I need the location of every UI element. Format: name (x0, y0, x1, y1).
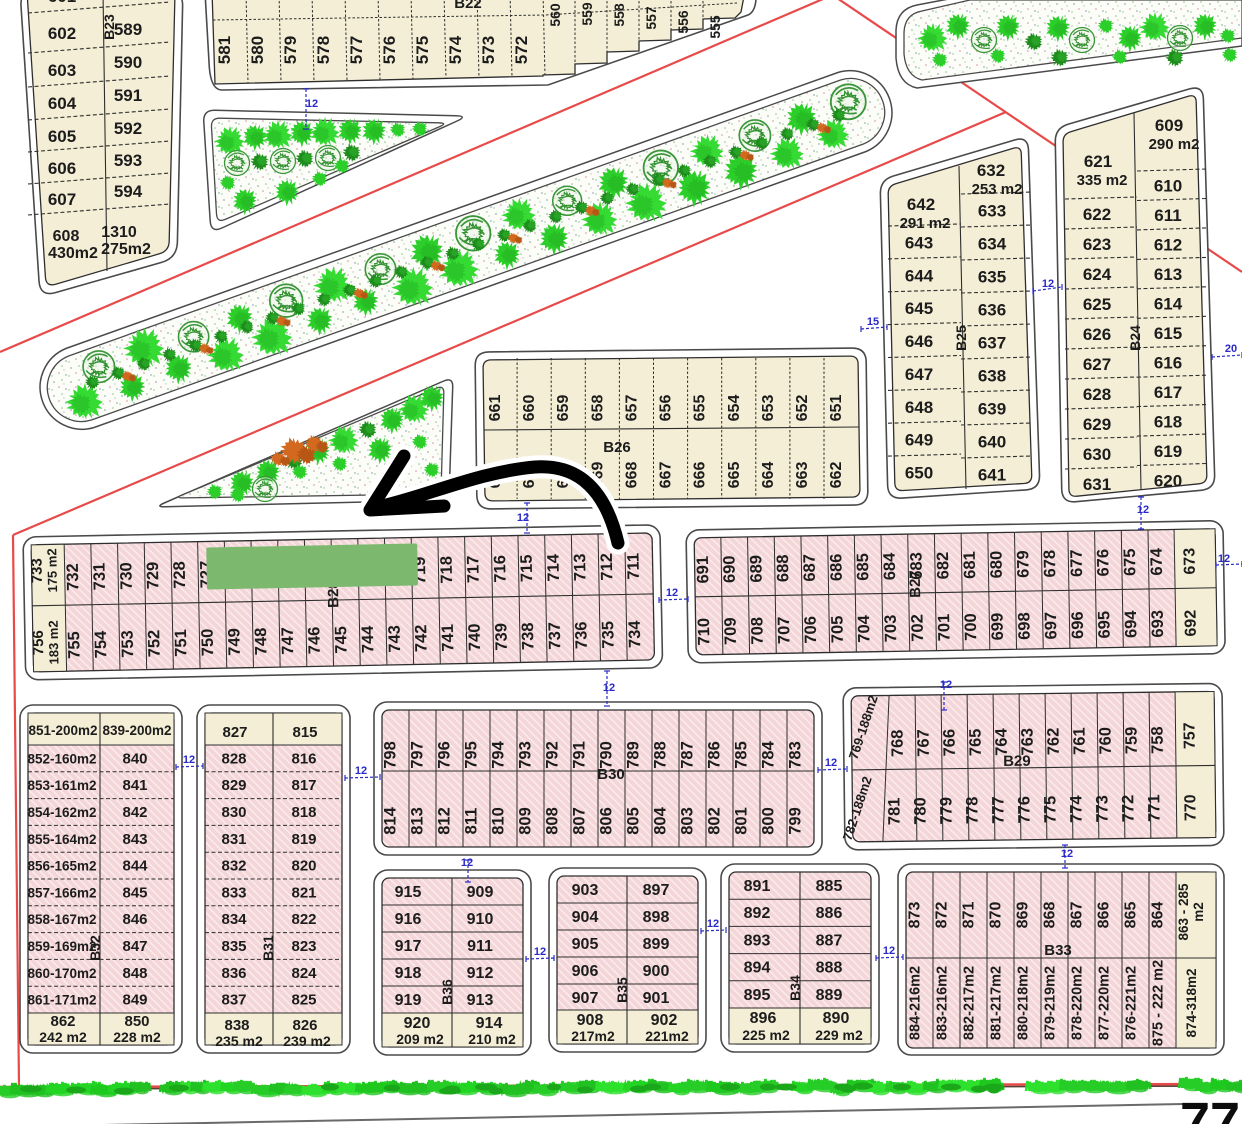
svg-text:909: 909 (467, 884, 494, 901)
svg-text:752: 752 (145, 630, 164, 658)
svg-text:662: 662 (828, 462, 845, 489)
svg-text:681: 681 (961, 551, 979, 579)
svg-text:242 m2: 242 m2 (39, 1029, 87, 1045)
svg-text:893: 893 (744, 932, 771, 949)
svg-text:746: 746 (305, 626, 324, 654)
svg-text:783: 783 (787, 741, 805, 769)
svg-text:908: 908 (577, 1012, 604, 1029)
svg-text:814: 814 (382, 806, 400, 834)
svg-text:665: 665 (726, 462, 743, 489)
svg-text:706: 706 (802, 616, 820, 644)
svg-text:709: 709 (722, 617, 740, 645)
svg-text:767: 767 (915, 729, 933, 757)
svg-text:648: 648 (905, 398, 933, 417)
svg-text:661: 661 (487, 395, 504, 422)
svg-text:580: 580 (248, 36, 267, 64)
svg-text:827: 827 (222, 724, 247, 741)
svg-text:790: 790 (598, 741, 616, 769)
svg-text:175 m2: 175 m2 (44, 548, 60, 592)
svg-text:834: 834 (221, 911, 247, 928)
svg-text:907: 907 (572, 990, 599, 1007)
svg-text:606: 606 (48, 159, 76, 178)
svg-text:761: 761 (1070, 727, 1088, 755)
svg-text:771: 771 (1145, 794, 1163, 822)
svg-text:603: 603 (48, 61, 76, 80)
svg-text:604: 604 (48, 94, 77, 113)
svg-text:728: 728 (171, 561, 190, 589)
svg-text:558: 558 (611, 3, 627, 27)
svg-text:690: 690 (720, 555, 738, 583)
svg-text:866: 866 (1096, 902, 1113, 929)
svg-text:780: 780 (911, 797, 929, 825)
svg-text:829: 829 (221, 777, 246, 794)
svg-text:729: 729 (144, 562, 163, 590)
svg-text:627: 627 (1083, 355, 1111, 374)
svg-text:919: 919 (395, 992, 422, 1009)
svg-text:651: 651 (828, 395, 845, 422)
svg-text:633: 633 (978, 202, 1006, 221)
svg-text:B29: B29 (1003, 753, 1031, 770)
svg-text:579: 579 (281, 36, 300, 64)
svg-text:831: 831 (221, 831, 246, 848)
svg-text:684: 684 (881, 552, 899, 581)
svg-text:765: 765 (967, 729, 985, 757)
svg-text:607: 607 (48, 190, 76, 209)
svg-text:754: 754 (92, 630, 111, 659)
svg-text:B32: B32 (87, 935, 103, 961)
svg-text:701: 701 (935, 614, 953, 642)
svg-text:846: 846 (122, 911, 147, 928)
svg-text:618: 618 (1154, 412, 1182, 431)
svg-text:335 m2: 335 m2 (1077, 172, 1128, 189)
svg-text:768: 768 (889, 729, 907, 757)
svg-text:556: 556 (675, 10, 691, 34)
svg-text:861-171m2: 861-171m2 (27, 993, 96, 1008)
svg-text:798: 798 (382, 741, 400, 769)
svg-text:688: 688 (774, 554, 792, 582)
svg-text:647: 647 (905, 365, 933, 384)
svg-text:B23: B23 (101, 14, 117, 40)
svg-text:800: 800 (760, 807, 778, 835)
svg-text:699: 699 (988, 613, 1006, 641)
svg-text:751: 751 (172, 629, 191, 657)
svg-text:852-160m2: 852-160m2 (27, 751, 96, 766)
svg-text:12: 12 (355, 765, 367, 777)
svg-text:663: 663 (794, 462, 811, 489)
svg-text:826: 826 (292, 1017, 317, 1034)
svg-text:577: 577 (347, 36, 366, 64)
svg-text:837: 837 (221, 992, 246, 1009)
svg-text:605: 605 (48, 127, 76, 146)
svg-text:748: 748 (252, 628, 271, 656)
svg-text:883-216m2: 883-216m2 (935, 966, 951, 1040)
svg-text:620: 620 (1154, 471, 1182, 490)
svg-text:785: 785 (733, 741, 751, 769)
svg-text:626: 626 (1083, 325, 1111, 344)
svg-text:880-218m2: 880-218m2 (1016, 966, 1032, 1040)
svg-text:886: 886 (816, 905, 843, 922)
svg-text:654: 654 (726, 395, 743, 422)
svg-text:799: 799 (787, 807, 805, 835)
svg-text:640: 640 (978, 433, 1006, 452)
svg-text:659: 659 (555, 395, 572, 422)
svg-text:758: 758 (1148, 726, 1166, 754)
svg-text:693: 693 (1149, 610, 1167, 638)
svg-text:624: 624 (1083, 265, 1112, 284)
svg-text:660: 660 (521, 395, 538, 422)
svg-text:910: 910 (467, 911, 494, 928)
svg-text:801: 801 (733, 807, 751, 835)
svg-text:884-216m2: 884-216m2 (908, 966, 924, 1040)
svg-text:609: 609 (1155, 116, 1183, 135)
svg-text:666: 666 (692, 462, 709, 489)
svg-text:652: 652 (794, 395, 811, 422)
svg-text:890: 890 (823, 1010, 850, 1027)
svg-text:674: 674 (1148, 547, 1166, 576)
svg-text:803: 803 (679, 807, 697, 835)
svg-text:12: 12 (1061, 848, 1073, 860)
svg-text:634: 634 (978, 235, 1007, 254)
svg-text:702: 702 (909, 614, 927, 642)
svg-text:275m2: 275m2 (101, 241, 151, 258)
svg-text:650: 650 (905, 464, 933, 483)
svg-text:850: 850 (124, 1013, 149, 1030)
svg-text:668: 668 (624, 462, 641, 489)
svg-text:766: 766 (941, 729, 959, 757)
svg-text:894: 894 (744, 960, 771, 977)
svg-text:12: 12 (534, 946, 546, 958)
svg-text:749: 749 (225, 628, 244, 656)
svg-text:779: 779 (937, 797, 955, 825)
svg-text:892: 892 (744, 905, 771, 922)
svg-text:573: 573 (479, 36, 498, 64)
svg-text:B30: B30 (597, 766, 625, 783)
svg-text:870: 870 (988, 902, 1005, 929)
svg-text:818: 818 (291, 804, 316, 821)
svg-text:913: 913 (467, 992, 494, 1009)
svg-text:756: 756 (30, 630, 47, 655)
svg-text:655: 655 (692, 395, 709, 422)
svg-text:868: 868 (1042, 902, 1059, 929)
svg-text:810: 810 (490, 807, 508, 835)
svg-text:845: 845 (122, 884, 147, 901)
svg-text:559: 559 (579, 2, 595, 26)
svg-text:629: 629 (1083, 415, 1111, 434)
svg-text:791: 791 (571, 741, 589, 769)
svg-text:209 m2: 209 m2 (396, 1031, 444, 1047)
svg-text:576: 576 (380, 36, 399, 64)
svg-text:773: 773 (1093, 795, 1111, 823)
svg-text:830: 830 (221, 804, 246, 821)
svg-text:290 m2: 290 m2 (1149, 136, 1200, 153)
svg-text:608: 608 (53, 228, 80, 245)
svg-text:691: 691 (694, 556, 712, 584)
svg-text:905: 905 (572, 936, 599, 953)
svg-text:612: 612 (1154, 236, 1182, 255)
svg-text:575: 575 (413, 36, 432, 64)
svg-text:774: 774 (1067, 794, 1085, 823)
svg-text:183 m2: 183 m2 (46, 620, 62, 664)
svg-text:860-170m2: 860-170m2 (27, 966, 96, 981)
svg-text:900: 900 (643, 963, 670, 980)
svg-text:12: 12 (707, 918, 719, 930)
svg-text:657: 657 (624, 395, 641, 422)
svg-text:12: 12 (306, 98, 318, 110)
svg-text:898: 898 (643, 909, 670, 926)
svg-text:210 m2: 210 m2 (468, 1031, 516, 1047)
svg-text:873: 873 (907, 902, 924, 929)
svg-text:1310: 1310 (101, 224, 137, 241)
svg-text:664: 664 (760, 462, 777, 489)
svg-text:716: 716 (491, 555, 510, 583)
svg-text:656: 656 (658, 395, 675, 422)
svg-text:636: 636 (978, 301, 1006, 320)
svg-text:m2: m2 (1191, 902, 1206, 922)
svg-text:715: 715 (518, 554, 537, 582)
svg-text:760: 760 (1096, 727, 1114, 755)
svg-text:917: 917 (395, 938, 422, 955)
svg-text:12: 12 (183, 754, 195, 766)
svg-text:695: 695 (1095, 611, 1113, 639)
svg-text:689: 689 (747, 555, 765, 583)
svg-text:854-162m2: 854-162m2 (27, 805, 96, 820)
svg-text:707: 707 (775, 616, 793, 644)
svg-text:812: 812 (436, 807, 454, 835)
svg-text:12: 12 (666, 587, 678, 599)
svg-text:710: 710 (695, 618, 713, 646)
svg-text:843: 843 (122, 831, 147, 848)
svg-text:B35: B35 (614, 977, 630, 1003)
svg-text:872: 872 (934, 902, 951, 929)
svg-text:625: 625 (1083, 295, 1111, 314)
svg-text:808: 808 (544, 807, 562, 835)
svg-text:755: 755 (65, 631, 84, 659)
svg-text:828: 828 (221, 750, 246, 767)
svg-text:867: 867 (1069, 902, 1086, 929)
svg-text:897: 897 (643, 882, 670, 899)
svg-text:228 m2: 228 m2 (113, 1029, 161, 1045)
svg-text:12: 12 (461, 857, 473, 869)
svg-text:15: 15 (867, 316, 879, 328)
svg-text:617: 617 (1154, 383, 1182, 402)
svg-text:698: 698 (1015, 612, 1033, 640)
svg-text:611: 611 (1154, 206, 1181, 225)
svg-text:673: 673 (1181, 548, 1198, 575)
svg-text:631: 631 (1083, 475, 1111, 494)
svg-text:777: 777 (989, 796, 1007, 824)
svg-text:822: 822 (291, 911, 316, 928)
svg-text:708: 708 (748, 617, 766, 645)
svg-text:642: 642 (907, 195, 935, 214)
svg-text:712: 712 (598, 553, 617, 581)
svg-text:560: 560 (547, 3, 563, 27)
svg-text:679: 679 (1014, 550, 1032, 578)
svg-text:645: 645 (905, 299, 933, 318)
svg-text:697: 697 (1042, 612, 1060, 640)
svg-text:733: 733 (28, 558, 45, 583)
svg-text:823: 823 (291, 938, 316, 955)
svg-text:B22: B22 (454, 0, 482, 12)
svg-text:644: 644 (905, 266, 934, 285)
svg-text:592: 592 (114, 119, 142, 138)
svg-text:601: 601 (48, 0, 76, 6)
svg-text:750: 750 (199, 629, 218, 657)
svg-text:789: 789 (625, 741, 643, 769)
svg-text:895: 895 (744, 987, 771, 1004)
svg-text:675: 675 (1121, 548, 1139, 576)
svg-text:820: 820 (291, 858, 316, 875)
svg-text:615: 615 (1154, 324, 1182, 343)
svg-text:891: 891 (744, 878, 771, 895)
svg-text:902: 902 (651, 1012, 678, 1029)
svg-text:863 - 285: 863 - 285 (1176, 883, 1191, 941)
svg-text:874-318m2: 874-318m2 (1184, 968, 1199, 1037)
svg-text:630: 630 (1083, 445, 1111, 464)
svg-text:787: 787 (679, 741, 697, 769)
svg-text:824: 824 (291, 965, 317, 982)
svg-text:557: 557 (643, 6, 659, 30)
svg-text:658: 658 (589, 395, 606, 422)
svg-text:835: 835 (221, 938, 246, 955)
svg-text:915: 915 (395, 884, 422, 901)
svg-text:759: 759 (1122, 727, 1140, 755)
svg-text:591: 591 (114, 86, 142, 105)
svg-text:858-167m2: 858-167m2 (27, 912, 96, 927)
svg-text:876-221m2: 876-221m2 (1124, 966, 1140, 1040)
svg-text:816: 816 (291, 750, 316, 767)
svg-text:904: 904 (572, 909, 599, 926)
svg-text:731: 731 (91, 563, 110, 591)
svg-text:667: 667 (658, 462, 675, 489)
svg-text:621: 621 (1084, 152, 1112, 171)
svg-text:610: 610 (1154, 177, 1182, 196)
svg-text:918: 918 (395, 965, 422, 982)
svg-text:730: 730 (117, 562, 136, 590)
svg-text:217m2: 217m2 (571, 1028, 615, 1044)
svg-text:12: 12 (825, 757, 837, 769)
svg-text:764: 764 (992, 727, 1010, 756)
svg-text:770: 770 (1182, 794, 1199, 821)
svg-text:775: 775 (1041, 796, 1059, 824)
svg-text:871: 871 (961, 902, 978, 929)
svg-text:692: 692 (1182, 610, 1199, 637)
svg-text:685: 685 (854, 553, 872, 581)
svg-text:842: 842 (122, 804, 147, 821)
svg-text:B31: B31 (260, 935, 276, 961)
svg-text:221m2: 221m2 (645, 1028, 689, 1044)
svg-text:864: 864 (1150, 902, 1167, 929)
svg-text:B26: B26 (603, 439, 631, 456)
svg-text:794: 794 (490, 740, 508, 768)
svg-text:901: 901 (643, 990, 670, 1007)
svg-text:847: 847 (122, 938, 147, 955)
svg-text:797: 797 (409, 741, 427, 769)
svg-text:734: 734 (626, 620, 645, 649)
svg-text:882-217m2: 882-217m2 (962, 966, 978, 1040)
svg-text:805: 805 (625, 807, 643, 835)
svg-text:742: 742 (412, 624, 431, 652)
svg-text:811: 811 (463, 808, 481, 835)
svg-text:855-164m2: 855-164m2 (27, 832, 96, 847)
svg-text:738: 738 (519, 622, 538, 650)
svg-text:841: 841 (122, 777, 147, 794)
svg-text:589: 589 (114, 20, 142, 39)
svg-text:614: 614 (1154, 295, 1183, 314)
svg-text:12: 12 (940, 679, 952, 691)
svg-text:555: 555 (707, 15, 723, 39)
svg-text:914: 914 (476, 1015, 503, 1032)
svg-text:784: 784 (760, 740, 778, 768)
svg-text:744: 744 (359, 625, 378, 654)
svg-text:906: 906 (572, 963, 599, 980)
svg-text:613: 613 (1154, 265, 1182, 284)
svg-text:590: 590 (114, 53, 142, 72)
svg-text:865: 865 (1123, 902, 1140, 929)
svg-text:821: 821 (291, 884, 316, 901)
svg-text:877-220m2: 877-220m2 (1097, 966, 1113, 1040)
svg-text:628: 628 (1083, 385, 1111, 404)
svg-text:736: 736 (572, 621, 591, 649)
svg-text:896: 896 (750, 1010, 777, 1027)
svg-text:602: 602 (48, 24, 76, 43)
svg-text:20: 20 (1225, 343, 1237, 355)
svg-text:235 m2: 235 m2 (215, 1033, 263, 1049)
svg-text:819: 819 (291, 831, 316, 848)
svg-text:772: 772 (1119, 795, 1137, 823)
svg-text:838: 838 (224, 1017, 249, 1034)
svg-text:623: 623 (1083, 235, 1111, 254)
svg-text:588: 588 (114, 0, 142, 2)
svg-text:635: 635 (978, 268, 1006, 287)
svg-text:815: 815 (292, 724, 317, 741)
svg-text:616: 616 (1154, 354, 1182, 373)
svg-text:632: 632 (977, 161, 1005, 180)
svg-text:856-165m2: 856-165m2 (27, 859, 96, 874)
svg-text:694: 694 (1122, 610, 1140, 639)
svg-text:B36: B36 (439, 979, 455, 1005)
svg-text:77: 77 (1180, 1092, 1240, 1124)
svg-text:737: 737 (546, 622, 565, 650)
svg-text:593: 593 (114, 151, 142, 170)
svg-text:745: 745 (332, 626, 351, 654)
svg-text:713: 713 (571, 553, 590, 581)
svg-text:849: 849 (122, 992, 147, 1009)
svg-text:809: 809 (517, 807, 535, 835)
svg-text:788: 788 (652, 741, 670, 769)
svg-text:848: 848 (122, 965, 147, 982)
svg-text:899: 899 (643, 936, 670, 953)
svg-text:903: 903 (572, 882, 599, 899)
svg-text:705: 705 (828, 615, 846, 643)
svg-text:253 m2: 253 m2 (972, 181, 1023, 198)
svg-text:912: 912 (467, 965, 494, 982)
svg-text:714: 714 (544, 553, 563, 582)
svg-text:686: 686 (827, 553, 845, 581)
svg-text:735: 735 (599, 621, 618, 649)
svg-text:619: 619 (1154, 442, 1182, 461)
svg-text:786: 786 (706, 741, 724, 769)
svg-text:776: 776 (1015, 796, 1033, 824)
svg-text:741: 741 (439, 624, 458, 652)
svg-text:806: 806 (598, 807, 616, 835)
svg-text:682: 682 (934, 552, 952, 580)
svg-text:622: 622 (1083, 205, 1111, 224)
svg-text:844: 844 (122, 858, 148, 875)
svg-text:687: 687 (801, 554, 819, 582)
svg-text:638: 638 (978, 367, 1006, 386)
svg-text:639: 639 (978, 400, 1006, 419)
svg-text:740: 740 (466, 623, 485, 651)
